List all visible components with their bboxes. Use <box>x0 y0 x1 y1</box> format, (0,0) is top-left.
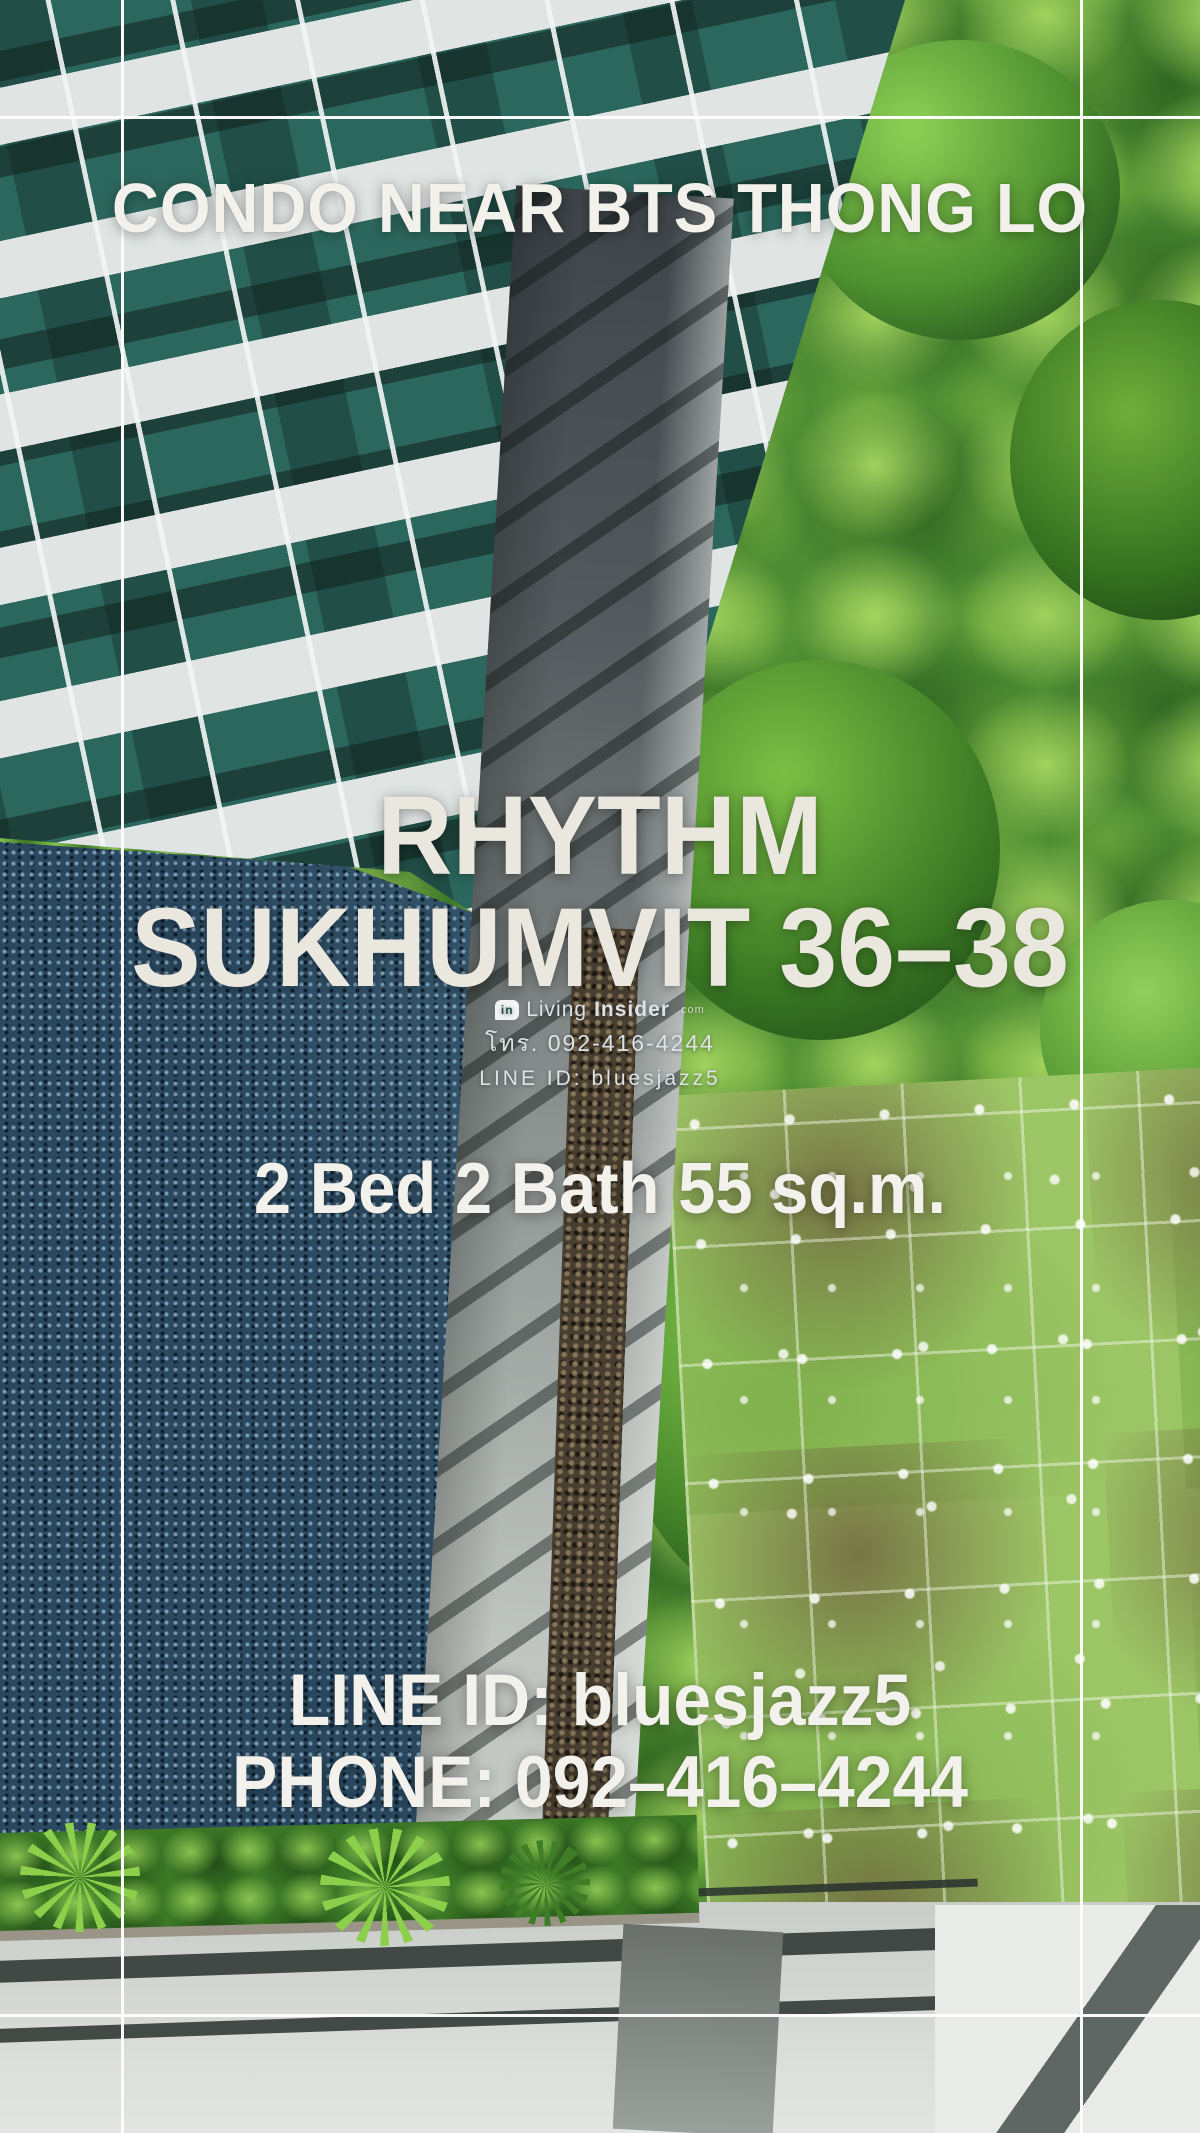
contact-block: LINE ID: bluesjazz5 PHONE: 092–416–4244 <box>42 1660 1158 1824</box>
bottom-dark-structure <box>613 1924 784 2133</box>
watermark-brand-light: Living <box>526 998 587 1022</box>
headline: CONDO NEAR BTS THONG LO <box>42 168 1158 248</box>
palm-plant <box>500 1840 590 1926</box>
palm-plant <box>320 1828 450 1946</box>
watermark-phone: โทร. 092-416-4244 <box>0 1026 1200 1062</box>
contact-phone: PHONE: 092–416–4244 <box>42 1742 1158 1824</box>
project-title: RHYTHM SUKHUMVIT 36–38 <box>42 780 1158 1004</box>
project-title-line2: SUKHUMVIT 36–38 <box>42 892 1158 1004</box>
watermark-brand-bold: Insider <box>594 998 670 1022</box>
bottom-right-wall <box>935 1905 1200 2133</box>
watermark-brand-row: in LivingInsider.com <box>0 998 1200 1022</box>
contact-line-id: LINE ID: bluesjazz5 <box>42 1660 1158 1742</box>
watermark-brand-suffix: .com <box>677 1004 705 1016</box>
watermark-line-id: LINE ID: bluesjazz5 <box>0 1067 1200 1091</box>
frame-border-bottom <box>0 2014 1200 2017</box>
frame-border-top <box>0 116 1200 119</box>
livinginsider-watermark: in LivingInsider.com โทร. 092-416-4244 L… <box>0 998 1200 1091</box>
livinginsider-logo-icon: in <box>495 1000 519 1020</box>
project-title-line1: RHYTHM <box>42 780 1158 892</box>
unit-specs: 2 Bed 2 Bath 55 sq.m. <box>42 1148 1158 1230</box>
